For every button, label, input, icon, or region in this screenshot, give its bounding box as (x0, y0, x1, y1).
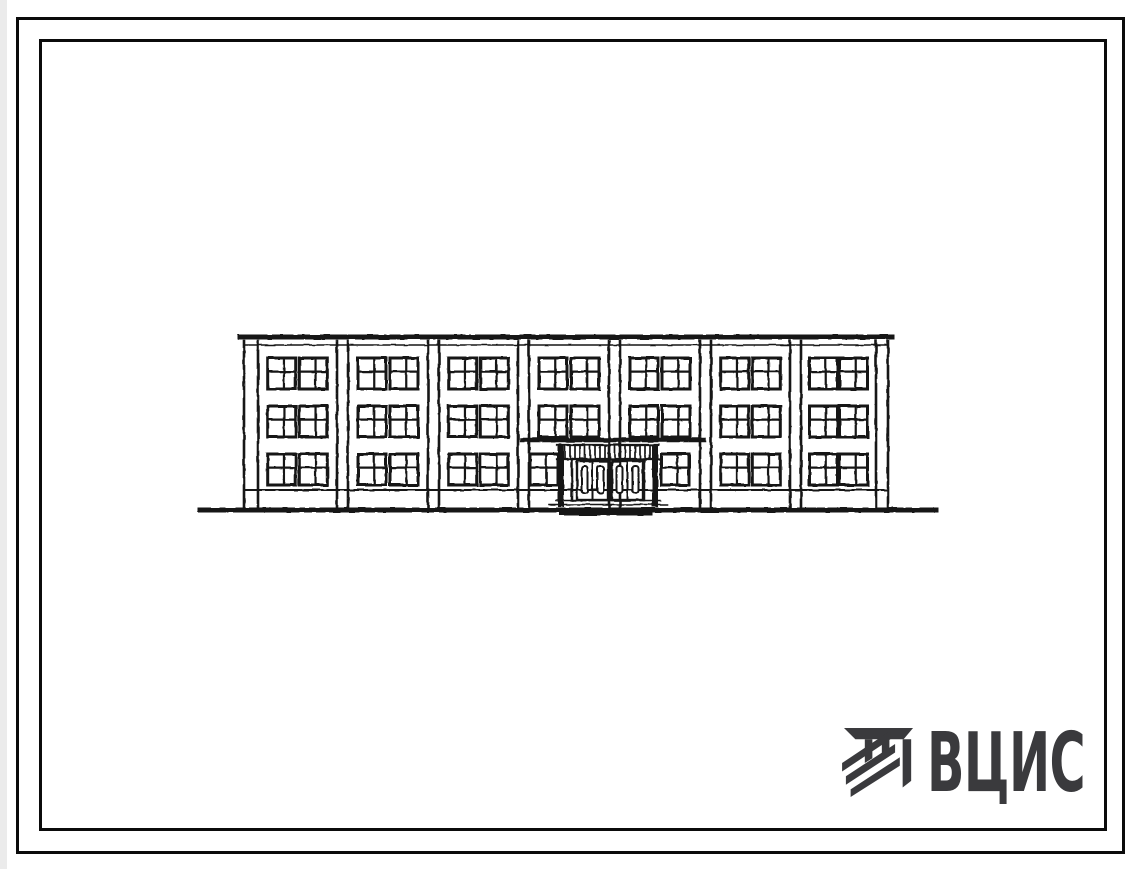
vcis-logo: ВЦИС (837, 727, 1087, 809)
vcis-emblem-icon (837, 727, 921, 797)
vcis-logo-text: ВЦИС (927, 723, 1085, 805)
scanned-drawing-page: ВЦИС (0, 0, 1139, 869)
